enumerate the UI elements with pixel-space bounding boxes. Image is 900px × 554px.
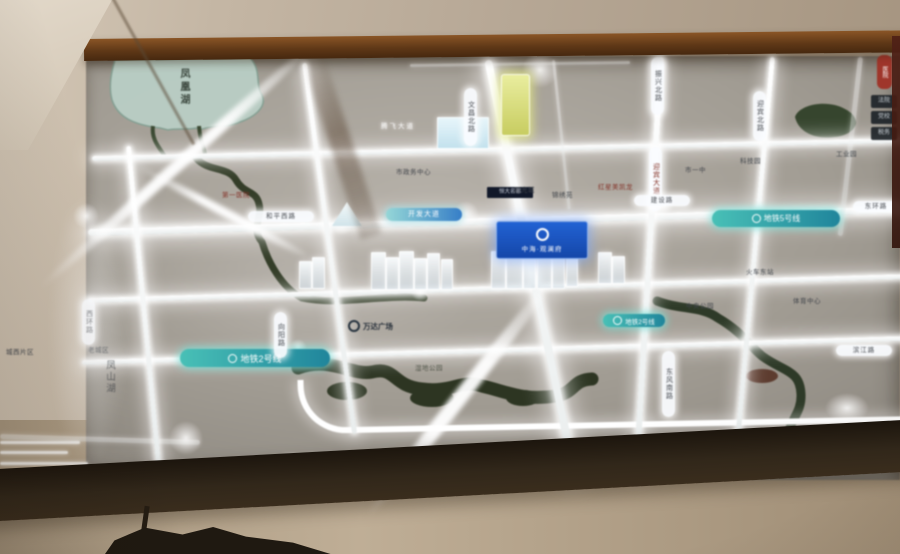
- frame-right-edge: [892, 36, 900, 248]
- road-name-pill: 滨江路: [836, 345, 892, 356]
- road-name-pill-vertical: 文昌北路: [464, 88, 477, 146]
- road-name-glow-label: 腾飞大道: [381, 120, 415, 130]
- poi-label: 阳光城: [514, 184, 535, 194]
- poi-label: 科技园: [740, 155, 761, 165]
- hospital-red-pill: 医院: [877, 55, 892, 89]
- project-name: 中海·观澜府: [522, 243, 563, 253]
- river-outlet-1: [153, 126, 166, 158]
- poi-label: 湿地公园: [415, 362, 443, 372]
- poi-label: 第一医院: [222, 189, 250, 199]
- building: [598, 252, 612, 284]
- poi-label: 市政务中心: [396, 166, 431, 176]
- poi-label: 工业园: [836, 148, 857, 158]
- road-name-pill-vertical: 向阳路: [274, 312, 287, 358]
- poi-label: 红星美凯龙: [598, 181, 633, 191]
- poi-label: 锦绣苑: [552, 189, 573, 199]
- poi-label: 体育中心: [793, 295, 821, 305]
- metro-line-label: 地铁5号线: [712, 210, 840, 227]
- poi-label: 市一中: [685, 164, 706, 174]
- poi-label: 中央公园: [686, 300, 714, 310]
- road-name-pill-vertical: 振兴北路: [651, 57, 664, 115]
- metro-line-text: 地铁2号线: [625, 316, 655, 326]
- metro-line-label: 地铁2号线: [603, 314, 665, 327]
- road-name-pill: 和平西路: [248, 211, 314, 222]
- metro-line-text: 地铁5号线: [764, 213, 800, 224]
- project-logo-icon: [536, 228, 549, 241]
- metro-logo-icon: [613, 316, 622, 325]
- metro-line-label: 地铁2号线: [180, 349, 330, 367]
- building: [441, 259, 453, 290]
- building: [414, 258, 427, 290]
- building: [427, 253, 440, 290]
- mall-label-text: 万达广场: [363, 321, 393, 332]
- road-name-pill-vertical: 迎宾北路: [753, 91, 766, 141]
- mall-logo-icon: [348, 320, 360, 332]
- metro-logo-icon: [752, 214, 761, 223]
- building: [399, 251, 414, 290]
- poi-label: 城西片区: [6, 346, 34, 356]
- lake-name-label: 凤凰湖: [176, 68, 191, 107]
- left-edge-bloom: [48, 190, 128, 470]
- glow-node: [825, 393, 869, 423]
- building: [371, 252, 386, 290]
- project-location-sign: 中海·观澜府: [496, 221, 588, 259]
- photo-of-map-board: 凤凰湖 凤山湖 腾飞大道 恒大名都 开发大道 医院 万达广场 中海·观澜府 地铁…: [0, 0, 900, 554]
- landmark-tower: [501, 74, 530, 136]
- metro-logo-icon: [228, 354, 237, 363]
- poi-label: 火车东站: [746, 266, 774, 276]
- road-name-pill: 建设路: [634, 195, 690, 206]
- building: [612, 256, 625, 284]
- building: [312, 257, 325, 289]
- mall-label: 万达广场: [348, 320, 393, 332]
- park-shape: [795, 104, 856, 138]
- road-name-pill-gradient: 开发大道: [386, 208, 462, 221]
- building: [386, 257, 399, 290]
- road-name-pill-vertical: 东风南路: [662, 351, 675, 417]
- glass-building: [437, 117, 489, 149]
- glow-node: [169, 421, 203, 455]
- building: [566, 257, 578, 287]
- building: [552, 255, 565, 289]
- building: [299, 261, 312, 289]
